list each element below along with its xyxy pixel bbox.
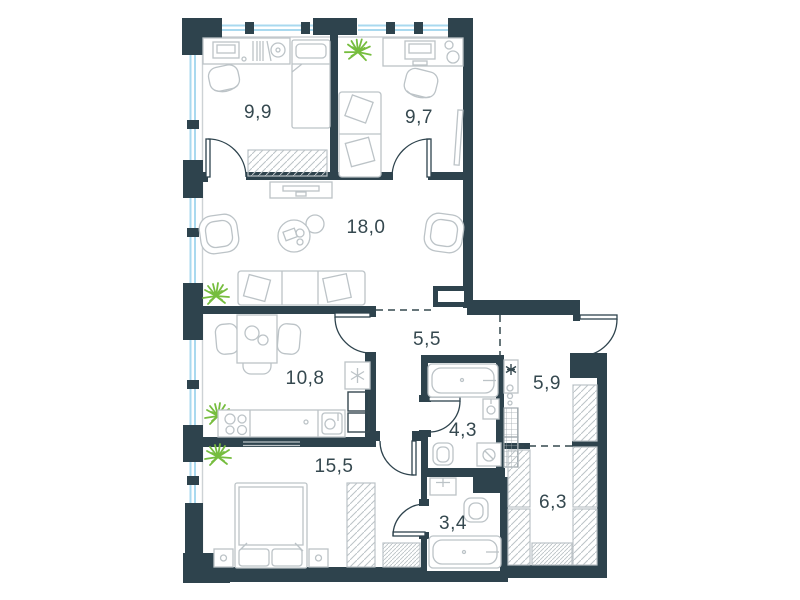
toilet-icon — [464, 498, 488, 522]
wardrobe-icon — [347, 483, 375, 567]
shoe-rack-icon — [532, 543, 572, 565]
toilet-icon — [433, 443, 453, 465]
room-area-label: 4,3 — [449, 420, 477, 441]
wardrobe-icon — [573, 385, 597, 441]
sofa-icon — [339, 92, 381, 177]
wardrobe-icon — [508, 509, 530, 565]
room-area-label: 9,7 — [405, 107, 433, 128]
sofa-icon — [238, 271, 365, 305]
armchair-icon — [423, 212, 466, 255]
bed-single-icon — [292, 40, 330, 128]
room-area-label: 9,9 — [244, 102, 272, 123]
nightstand-icon — [214, 549, 233, 567]
armchair-icon — [198, 213, 241, 256]
floor-plan: 9,9 9,7 — [0, 0, 800, 600]
kitchen-counter-icon — [218, 410, 345, 437]
nightstand-icon — [309, 549, 328, 567]
bed-double-icon — [235, 483, 307, 568]
room-area-label: 6,3 — [539, 492, 567, 513]
sink-icon — [483, 399, 499, 419]
wardrobe-icon — [573, 509, 597, 565]
wardrobe-icon — [508, 450, 530, 507]
room-area-label: 18,0 — [347, 217, 386, 238]
tv-stand-icon — [270, 182, 332, 198]
sink-icon — [430, 478, 456, 495]
room-area-label: 15,5 — [315, 456, 354, 477]
washing-machine-icon — [477, 443, 501, 466]
floor-plan-page: 9,9 9,7 — [0, 0, 800, 600]
background — [0, 0, 800, 600]
desk-icon — [383, 38, 463, 66]
wardrobe-icon — [573, 447, 597, 507]
room-area-label: 3,4 — [439, 513, 467, 534]
room-area-label: 5,5 — [413, 329, 441, 350]
duct-niche — [438, 291, 464, 302]
bathtub-icon — [429, 536, 501, 568]
room-area-label: 10,8 — [286, 368, 325, 389]
room-corridor: 5,5 — [413, 329, 441, 350]
desk-icon — [203, 38, 290, 64]
wardrobe-icon — [248, 150, 327, 176]
dresser-icon — [383, 543, 420, 567]
room-area-label: 5,9 — [533, 373, 561, 394]
bathtub-icon — [428, 364, 498, 397]
fridge-icon — [345, 362, 370, 389]
